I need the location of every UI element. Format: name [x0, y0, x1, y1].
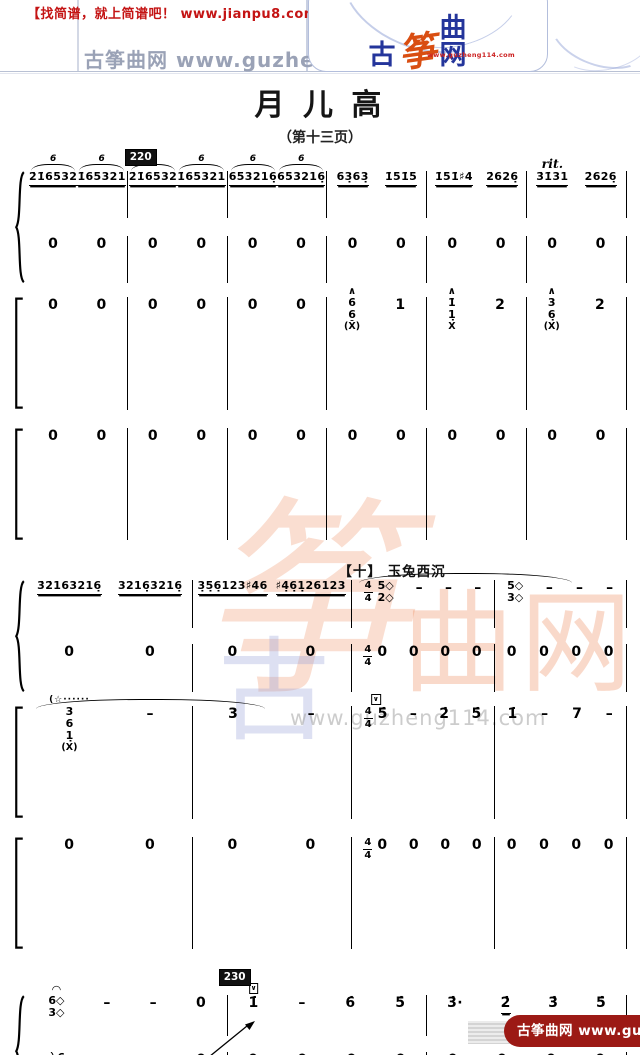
- score-measure: 0000: [495, 644, 627, 692]
- note-cell: 0: [596, 428, 606, 445]
- note-cell: 0: [539, 644, 549, 661]
- note-cell: 2̇: [439, 706, 449, 723]
- note-cell: 0: [409, 837, 419, 854]
- note-cell: 0: [507, 837, 517, 854]
- note-cell: 0: [507, 644, 517, 661]
- note-cell: 0: [96, 428, 106, 445]
- score-measure: 00: [128, 297, 228, 409]
- note-cell: –: [576, 580, 584, 597]
- note-cell: 0: [296, 428, 306, 445]
- note-cell: 0: [409, 644, 419, 661]
- score-measure: 62̇1̇653261̇65321: [128, 171, 228, 218]
- tremolo-mark-icon: ∨: [371, 694, 381, 705]
- note-cell: 0: [571, 837, 581, 854]
- measure-number-badge: 220: [125, 149, 157, 166]
- score-measure: ◠6̇◇3◇––0: [28, 995, 228, 1036]
- score-measure: rit.3̇1̇312̇626̣: [527, 171, 627, 218]
- score-measure: ∧1̇1̣X2: [427, 297, 527, 409]
- note-cell: 0: [148, 236, 158, 253]
- note-cell: –: [606, 580, 614, 597]
- score-measure: 1̇–7–: [495, 706, 627, 818]
- note-cell: ∨1̇: [248, 995, 258, 1012]
- score-measure: 00: [128, 428, 228, 540]
- note-cell: 0: [440, 644, 450, 661]
- square-bracket-icon: [13, 297, 26, 409]
- score-measure: 00: [228, 297, 328, 409]
- note-cell: 0: [348, 236, 358, 253]
- chord-stack: 36̣: [548, 297, 556, 321]
- note-cell: 5̇: [471, 706, 481, 723]
- note-cell: 0: [348, 428, 358, 445]
- note-cell: 0: [447, 428, 457, 445]
- note-cell: 63̣63̣: [337, 171, 369, 188]
- score-measure: 00: [327, 428, 427, 540]
- square-bracket-icon: [13, 428, 26, 540]
- note-cell: 3̇·: [447, 995, 463, 1012]
- note-cell: 0: [48, 297, 58, 314]
- score-stave: 3̇2̇163216̣3216̣3216̣3̣5̣6̣123♯46♯4̣6̣1̣…: [28, 580, 627, 628]
- note-cell: –: [308, 706, 316, 723]
- note-cell: (☆······361̣(X): [66, 706, 74, 742]
- note-cell: 0: [604, 837, 614, 854]
- score-measure: 00: [128, 236, 228, 283]
- note-cell: ∧1̇1̣X: [448, 297, 456, 321]
- note-cell: 0: [571, 644, 581, 661]
- brace-bracket-icon: [13, 995, 26, 1055]
- score-measure: 00: [28, 236, 128, 283]
- note-cell: 61̇65321: [77, 171, 125, 188]
- note-cell: 0: [96, 236, 106, 253]
- score-measure: 63̣63̣1̇51̇5: [327, 171, 427, 218]
- note-cell: 6653216̣: [277, 171, 325, 188]
- note-cell: 0: [196, 236, 206, 253]
- score-measure: ∧6̇6(X̄)1: [327, 297, 427, 409]
- chord-stack: 5◇3◇: [507, 580, 523, 604]
- note-cell: 5◇3◇: [507, 580, 523, 604]
- note-cell: 0: [472, 837, 482, 854]
- score-measure: 3̣5̣6̣123♯46♯4̣6̣1̣26123: [193, 580, 352, 628]
- note-cell: 62̇1̇6532: [129, 171, 177, 188]
- promo-banner-text: 【找简谱，就上简谱吧！ www.jianpu8.com】: [27, 3, 331, 22]
- note-cell: 0: [145, 837, 155, 854]
- note-cell: 0: [196, 995, 206, 1012]
- note-cell: 0: [196, 297, 206, 314]
- score-measure: 00: [327, 236, 427, 283]
- score-content: 22062̇1̇653261̇6532162̇1̇653261̇65321665…: [13, 149, 627, 1055]
- note-cell: 0: [48, 236, 58, 253]
- note-cell: 1̇51̇5: [385, 171, 417, 188]
- note-cell: 2̇626̣: [585, 171, 617, 188]
- note-cell: –: [150, 995, 158, 1012]
- note-cell: 5̇: [596, 995, 606, 1012]
- note-cell: 0: [596, 236, 606, 253]
- note-cell: 0: [248, 236, 258, 253]
- note-cell: ◠6̇◇3◇: [48, 995, 64, 1019]
- page-title: 月 儿 高: [0, 80, 640, 124]
- note-cell: 0: [64, 837, 74, 854]
- note-cell: 0: [148, 428, 158, 445]
- note-cell: 3̇2̇163216̣: [37, 580, 101, 597]
- note-cell: 6̇: [345, 995, 355, 1012]
- logo-gu-char: 古: [369, 42, 396, 69]
- score-systems: 22062̇1̇653261̇6532162̇1̇653261̇65321665…: [13, 149, 627, 1055]
- score-measure: 00: [28, 644, 193, 692]
- note-cell: rit.3̇1̇31: [536, 171, 568, 188]
- note-cell: 61̇65321: [177, 171, 225, 188]
- note-cell: 0: [496, 428, 506, 445]
- note-cell: 0: [296, 297, 306, 314]
- note-cell: 440: [363, 644, 387, 668]
- tuplet-bracket: 6: [79, 164, 123, 171]
- note-cell: 3̣5̣6̣123♯46: [198, 580, 268, 597]
- score-measure: 00: [193, 644, 352, 692]
- note-cell: 2̇626̣: [486, 171, 518, 188]
- note-cell: 0: [306, 644, 316, 661]
- note-cell: 0: [296, 236, 306, 253]
- note-cell: ♯4̣6̣1̣26123: [276, 580, 346, 597]
- tuplet-bracket: 6: [31, 164, 75, 171]
- square-bracket-icon: [13, 837, 26, 949]
- score-measure: 00: [228, 236, 328, 283]
- score-measure: ∨445̇–2̇5̇: [352, 706, 495, 818]
- note-cell: 0: [472, 644, 482, 661]
- note-cell: 1: [395, 297, 405, 314]
- score-system: 【十】 玉兔西沉3̇2̇163216̣3216̣3216̣3̣5̣6̣123♯4…: [13, 560, 627, 951]
- score-measure: 440000: [352, 644, 495, 692]
- footer-site-badge: 古筝曲网 www.guzheng114.com: [504, 1015, 640, 1047]
- logo-quwang-chars: 曲网: [440, 15, 488, 69]
- time-signature: 44: [363, 837, 372, 861]
- tuplet-bracket: 6: [279, 164, 323, 171]
- score-measure: 00: [28, 297, 128, 409]
- note-cell: 0: [604, 644, 614, 661]
- note-cell: 2̇: [501, 995, 511, 1014]
- score-measure: 5◇3◇–––: [495, 580, 627, 628]
- tuplet-bracket: 6: [179, 164, 223, 171]
- score-measure: 00: [427, 428, 527, 540]
- square-bracket-icon: [13, 706, 26, 818]
- score-stave: 000000∧6̇6(X̄)1∧1̇1̣X2∧36̣(X)2: [28, 297, 627, 409]
- fermata-icon: ◠: [52, 986, 62, 994]
- note-cell: ∧6̇6(X̄): [348, 297, 356, 321]
- brace-bracket-icon: [13, 580, 26, 692]
- note-cell: –: [606, 706, 614, 723]
- note-cell: 0: [547, 428, 557, 445]
- score-measure: 3–: [193, 706, 352, 818]
- note-cell: 0: [248, 297, 258, 314]
- score-measure: ∨1̇–6̇5̇: [228, 995, 428, 1036]
- time-signature: 44: [364, 706, 373, 730]
- score-stave: 000000000000: [28, 236, 627, 283]
- score-stave: 00004400000000: [28, 644, 627, 692]
- note-cell: 0: [539, 837, 549, 854]
- note-cell: 0: [96, 297, 106, 314]
- note-cell: 62̇1̇6532: [29, 171, 77, 188]
- note-cell: 0: [396, 428, 406, 445]
- note-cell: 1̇51̇♯4: [435, 171, 473, 188]
- note-cell: 0: [447, 236, 457, 253]
- note-cell: 0: [248, 428, 258, 445]
- time-signature: 44: [363, 644, 372, 668]
- note-cell: 0: [196, 428, 206, 445]
- score-measure: 3̇2̇163216̣3216̣3216̣: [28, 580, 193, 628]
- score-stave: 62̇1̇653261̇6532162̇1̇653261̇65321665321…: [28, 171, 627, 218]
- chord-stack: 361̣: [66, 706, 74, 742]
- chord-stack: 1̇1̣: [448, 297, 456, 321]
- score-stave: (☆······361̣(X)–3–∨445̇–2̇5̇1̇–7–: [28, 706, 627, 818]
- note-cell: 2: [495, 297, 505, 314]
- score-system: 22062̇1̇653261̇6532162̇1̇653261̇65321665…: [13, 149, 627, 542]
- score-measure: 0000: [495, 837, 627, 949]
- note-cell: 3̇: [548, 995, 558, 1012]
- note-cell: 0: [227, 644, 237, 661]
- note-cell: 0: [64, 644, 74, 661]
- chord-stack: 6̇6: [348, 297, 356, 321]
- note-cell: 7: [572, 706, 582, 723]
- section-label: 【十】 玉兔西沉: [338, 560, 445, 580]
- logo-url-text: www.guzheng114.com: [427, 51, 515, 59]
- note-cell: –: [410, 706, 418, 723]
- score-measure: 445◇2◇–––: [352, 580, 495, 628]
- note-cell: 0: [306, 837, 316, 854]
- note-cell: –: [103, 995, 111, 1012]
- note-cell: 0: [547, 236, 557, 253]
- note-cell: 3216̣3216̣: [118, 580, 182, 597]
- note-cell: 0: [48, 428, 58, 445]
- score-measure: ∧36̣(X)2: [527, 297, 627, 409]
- note-cell: 0: [227, 837, 237, 854]
- note-cell: 5̇: [395, 995, 405, 1012]
- note-cell: 2: [595, 297, 605, 314]
- score-measure: 6653216̣6653216̣: [228, 171, 328, 218]
- note-cell: 1̇: [507, 706, 517, 723]
- score-measure: 00: [28, 428, 128, 540]
- brace-bracket-icon: [13, 171, 26, 283]
- score-measure: 00: [527, 236, 627, 283]
- note-cell: 440: [363, 837, 387, 861]
- score-measure: 62̇1̇653261̇65321: [28, 171, 128, 218]
- note-cell: –: [541, 706, 549, 723]
- chord-stack: 5◇2◇: [378, 580, 394, 604]
- note-cell: 0: [440, 837, 450, 854]
- score-measure: 00: [28, 837, 193, 949]
- chord-stack: 6̇◇3◇: [48, 995, 64, 1019]
- note-cell: 0: [148, 297, 158, 314]
- time-signature: 44: [364, 580, 373, 604]
- score-measure: 1̇51̇♯42̇626̣: [427, 171, 527, 218]
- note-cell: ∧36̣(X): [548, 297, 556, 321]
- score-measure: 00: [527, 428, 627, 540]
- score-measure: 00: [193, 837, 352, 949]
- note-cell: 0: [496, 236, 506, 253]
- measure-number-badge: 230: [219, 969, 251, 986]
- note-cell: ∨445̇: [364, 706, 388, 730]
- score-measure: 00: [228, 428, 328, 540]
- note-cell: 445◇2◇: [364, 580, 394, 604]
- note-cell: 0: [145, 644, 155, 661]
- note-cell: 6653216̣: [229, 171, 277, 188]
- score-stave: 00004400000000: [28, 837, 627, 949]
- score-stave: 000000000000: [28, 428, 627, 540]
- tuplet-bracket: 6: [231, 164, 275, 171]
- note-cell: –: [298, 995, 306, 1012]
- score-measure: 440000: [352, 837, 495, 949]
- note-cell: 0: [396, 236, 406, 253]
- score-measure: (☆······361̣(X)–: [28, 706, 193, 818]
- page-subtitle: （第十三页）: [0, 127, 640, 147]
- score-measure: 00: [427, 236, 527, 283]
- site-logo: 古 筝 曲网 www.guzheng114.com: [308, 0, 548, 72]
- score-page: 筝 曲网 古 www.guzheng114.com 【找简谱，就上简谱吧！ ww…: [0, 0, 640, 1055]
